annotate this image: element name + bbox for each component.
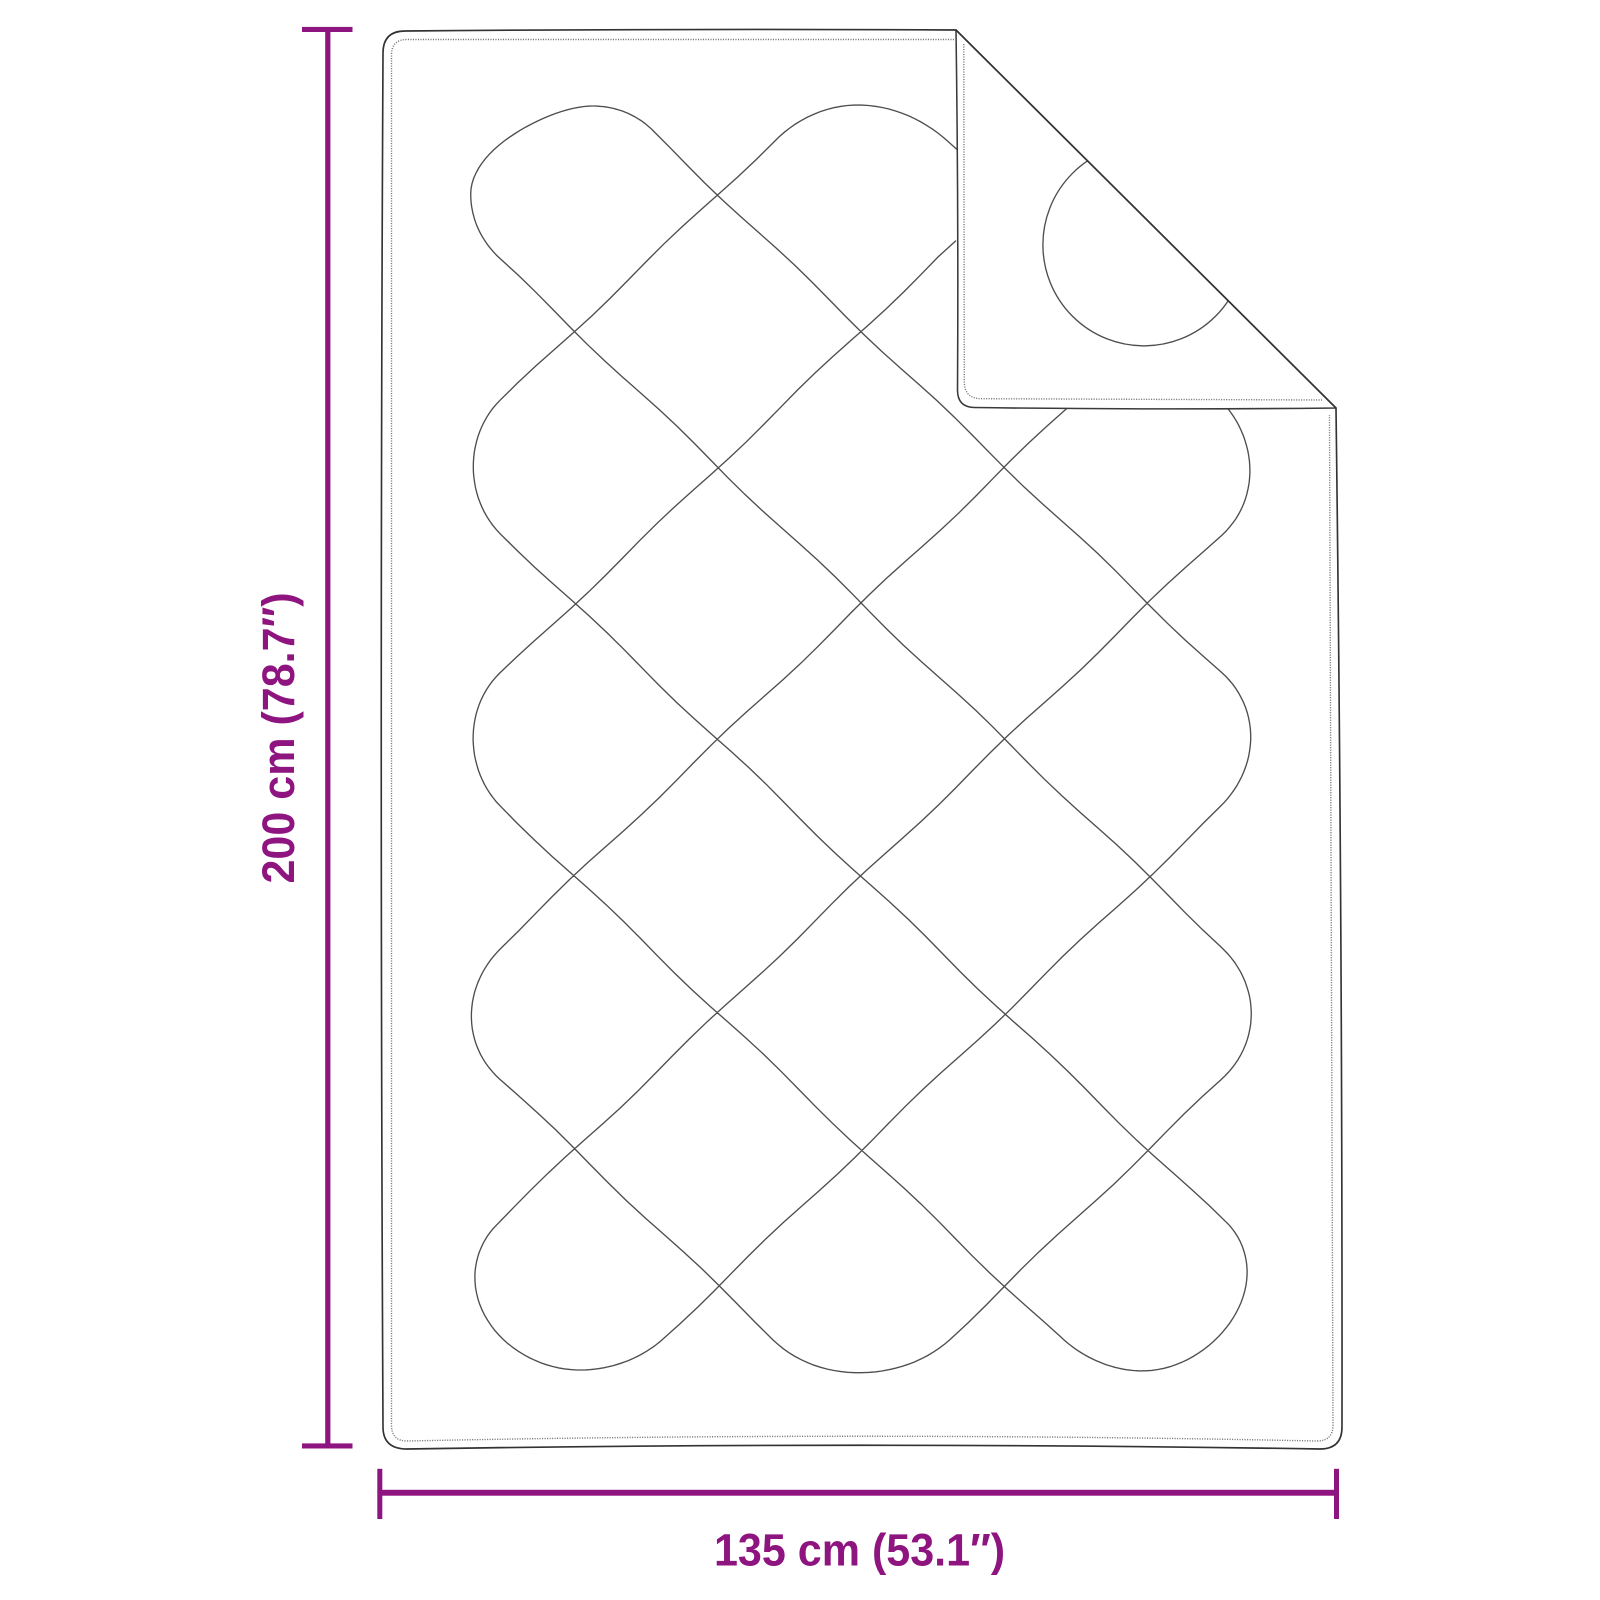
svg-text:135 cm (53.1″): 135 cm (53.1″) [714,1526,1005,1576]
svg-text:200 cm (78.7″): 200 cm (78.7″) [254,592,304,883]
